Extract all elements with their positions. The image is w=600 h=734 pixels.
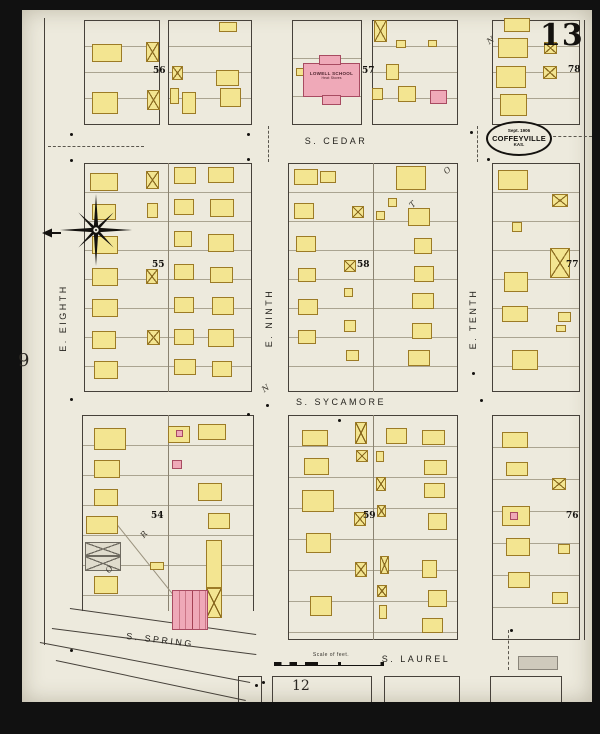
block-number: 78 xyxy=(568,65,581,75)
block-number: 55 xyxy=(152,260,165,270)
frame-outbuilding xyxy=(377,505,386,517)
survey-dot xyxy=(247,133,250,136)
frame-building xyxy=(208,513,230,529)
frame-building xyxy=(412,293,434,309)
frame-building xyxy=(512,222,522,232)
frame-building xyxy=(208,329,234,347)
survey-dot xyxy=(255,684,258,687)
street-label-s-sycamore: S. SYCAMORE xyxy=(296,397,386,407)
survey-dot xyxy=(480,399,483,402)
street-boundary-line xyxy=(44,18,45,645)
frame-building xyxy=(198,424,226,440)
brick-building xyxy=(430,90,447,104)
frame-building xyxy=(94,489,118,506)
frame-building xyxy=(412,323,432,339)
street-label-e-tenth: E. TENTH xyxy=(468,289,478,350)
frame-outbuilding xyxy=(356,450,368,462)
frame-building xyxy=(386,64,399,80)
city-block xyxy=(384,676,460,702)
frame-building xyxy=(174,329,194,345)
frame-building xyxy=(298,299,318,315)
frame-outbuilding xyxy=(374,20,387,42)
frame-building xyxy=(94,428,126,450)
block-number: 77 xyxy=(566,260,579,270)
frame-building xyxy=(414,266,434,282)
block-number: 76 xyxy=(566,511,579,521)
frame-building xyxy=(424,460,447,475)
frame-building xyxy=(92,92,118,114)
city-block xyxy=(272,676,372,702)
frame-building xyxy=(504,18,530,32)
frame-building xyxy=(90,173,118,191)
frame-building xyxy=(147,203,158,218)
frame-outbuilding xyxy=(172,66,183,80)
sheet-number: 13 xyxy=(540,18,584,53)
street-boundary-line xyxy=(584,20,585,640)
frame-building xyxy=(502,432,528,448)
frame-building xyxy=(379,605,387,619)
title-stamp: Sept. 1906 COFFEYVILLE KAS. xyxy=(486,121,552,156)
frame-building xyxy=(558,312,571,322)
frame-building xyxy=(424,483,445,498)
frame-building xyxy=(498,38,528,58)
city-block xyxy=(492,415,580,640)
school-north-wing xyxy=(319,55,341,65)
frame-building xyxy=(552,592,568,604)
frame-building xyxy=(174,297,194,313)
frame-building xyxy=(219,22,237,32)
school-building: LOWELL SCHOOL Heat: Stoves xyxy=(303,55,360,105)
label-patch xyxy=(518,656,558,670)
frame-building xyxy=(150,562,164,570)
frame-building xyxy=(498,170,528,190)
frame-building xyxy=(408,350,430,366)
frame-building xyxy=(428,40,437,47)
brick-building xyxy=(176,430,183,437)
frame-building xyxy=(92,44,122,62)
adjacent-sheet-bottom: 12 xyxy=(292,678,310,694)
frame-building xyxy=(208,234,234,252)
survey-dot xyxy=(70,649,73,652)
frame-outbuilding xyxy=(552,194,568,207)
compass-rose-icon xyxy=(58,192,134,268)
survey-dot xyxy=(247,413,250,416)
frame-building xyxy=(428,513,447,530)
frame-building xyxy=(496,66,526,88)
frame-building xyxy=(302,430,328,446)
block-alley-line xyxy=(373,163,374,392)
frame-building xyxy=(294,203,314,219)
frame-building xyxy=(388,198,397,207)
survey-dot xyxy=(70,133,73,136)
frame-outbuilding xyxy=(206,588,222,618)
dashed-survey-line xyxy=(508,630,509,670)
block-number: 54 xyxy=(151,511,164,521)
frame-building xyxy=(344,320,356,332)
frame-building xyxy=(170,88,179,104)
frame-building xyxy=(174,231,192,247)
frame-building xyxy=(396,40,406,48)
frame-building xyxy=(302,490,334,512)
survey-dot xyxy=(510,629,513,632)
frame-outbuilding xyxy=(147,90,160,110)
frame-building xyxy=(174,264,194,280)
frame-building xyxy=(86,516,118,534)
frame-building xyxy=(506,538,530,556)
street-label-s-laurel: S. LAUREL xyxy=(382,654,451,664)
survey-dot xyxy=(262,681,265,684)
frame-building xyxy=(504,272,528,292)
brick-building xyxy=(172,460,182,469)
frame-outbuilding xyxy=(355,562,367,577)
street-label-e-ninth: E. NINTH xyxy=(264,289,274,348)
frame-building xyxy=(422,618,443,633)
frame-building xyxy=(398,86,416,102)
frame-building xyxy=(206,540,222,588)
survey-dot xyxy=(487,158,490,161)
frame-building xyxy=(376,451,384,462)
block-number: 56 xyxy=(153,66,166,76)
stamp-state: KAS. xyxy=(514,143,525,148)
frame-building xyxy=(220,88,241,107)
frame-building xyxy=(346,350,359,361)
adjacent-sheet-left: 9 xyxy=(18,350,29,371)
survey-dot xyxy=(247,158,250,161)
frame-building xyxy=(320,171,336,183)
factory-building xyxy=(172,590,208,630)
block-alley-line xyxy=(168,163,169,392)
frame-building xyxy=(422,560,437,578)
frame-outbuilding xyxy=(147,330,160,345)
frame-building xyxy=(92,331,116,349)
frame-building xyxy=(500,94,527,116)
frame-outbuilding xyxy=(355,422,367,444)
frame-outbuilding xyxy=(376,477,386,491)
frame-building xyxy=(414,238,432,254)
survey-dot xyxy=(70,398,73,401)
west-arrow-icon xyxy=(42,226,62,240)
frame-building xyxy=(298,268,316,282)
block-alley-line xyxy=(168,415,169,611)
school-label: LOWELL SCHOOL Heat: Stoves xyxy=(303,71,360,81)
frame-outbuilding xyxy=(377,585,387,597)
block-number: 58 xyxy=(357,260,370,270)
frame-building xyxy=(310,596,332,616)
frame-building xyxy=(556,325,566,332)
frame-outbuilding xyxy=(146,171,159,189)
street-label-e-eighth: E. EIGHTH xyxy=(58,284,68,352)
school-note: Heat: Stoves xyxy=(303,76,360,80)
frame-building xyxy=(428,590,447,607)
frame-building xyxy=(208,167,234,183)
frame-building xyxy=(558,544,570,554)
brick-building xyxy=(510,512,518,520)
frame-building xyxy=(376,211,385,220)
frame-outbuilding xyxy=(352,206,364,218)
frame-building xyxy=(174,167,196,184)
frame-building xyxy=(174,199,194,215)
frame-outbuilding xyxy=(380,556,389,574)
survey-dot xyxy=(472,372,475,375)
frame-building xyxy=(344,288,353,297)
frame-building xyxy=(408,208,430,226)
frame-building xyxy=(512,350,538,370)
frame-outbuilding xyxy=(543,66,557,79)
frame-building xyxy=(506,462,528,476)
frame-building xyxy=(94,361,118,379)
dashed-survey-line xyxy=(48,146,144,147)
survey-dot xyxy=(338,419,341,422)
frame-outbuilding xyxy=(344,260,356,272)
frame-building xyxy=(174,359,196,375)
frame-building xyxy=(306,533,331,553)
frame-building xyxy=(198,483,222,501)
dashed-survey-line xyxy=(548,136,592,137)
frame-building xyxy=(94,576,118,594)
city-block xyxy=(490,676,562,702)
frame-building xyxy=(294,169,318,185)
survey-dot xyxy=(70,159,73,162)
frame-building xyxy=(216,70,239,86)
frame-building xyxy=(182,92,196,114)
frame-building xyxy=(210,199,234,217)
scale-bar xyxy=(274,662,384,666)
frame-building xyxy=(508,572,530,588)
frame-outbuilding xyxy=(146,42,159,62)
frame-building xyxy=(298,330,316,344)
stamp-city: COFFEYVILLE xyxy=(492,135,546,143)
frame-building xyxy=(386,428,407,444)
frame-building xyxy=(304,458,329,475)
iron-clad-building xyxy=(85,542,121,556)
frame-building xyxy=(396,166,426,190)
frame-building xyxy=(502,306,528,322)
survey-dot xyxy=(266,404,269,407)
frame-building xyxy=(296,236,316,252)
frame-building xyxy=(372,88,383,100)
frame-building xyxy=(212,297,234,315)
scanned-map-photo: 565778555877545976NNTORO LOWELL SCHOOL H… xyxy=(0,0,600,734)
block-number: 57 xyxy=(362,66,375,76)
school-south-wing xyxy=(322,95,341,105)
frame-building xyxy=(94,460,120,478)
frame-building xyxy=(210,267,233,283)
block-alley-line xyxy=(373,415,374,640)
block-number: 59 xyxy=(363,511,376,521)
frame-building xyxy=(422,430,445,445)
dashed-survey-line xyxy=(268,126,269,162)
frame-outbuilding xyxy=(146,269,158,284)
survey-dot xyxy=(470,131,473,134)
scale-label: Scale of feet. xyxy=(313,652,349,658)
dashed-survey-line xyxy=(477,126,478,162)
frame-building xyxy=(92,268,118,286)
frame-building xyxy=(92,299,118,317)
frame-building xyxy=(212,361,232,377)
street-label-s-cedar: S. CEDAR xyxy=(305,136,368,146)
frame-outbuilding xyxy=(552,478,566,490)
